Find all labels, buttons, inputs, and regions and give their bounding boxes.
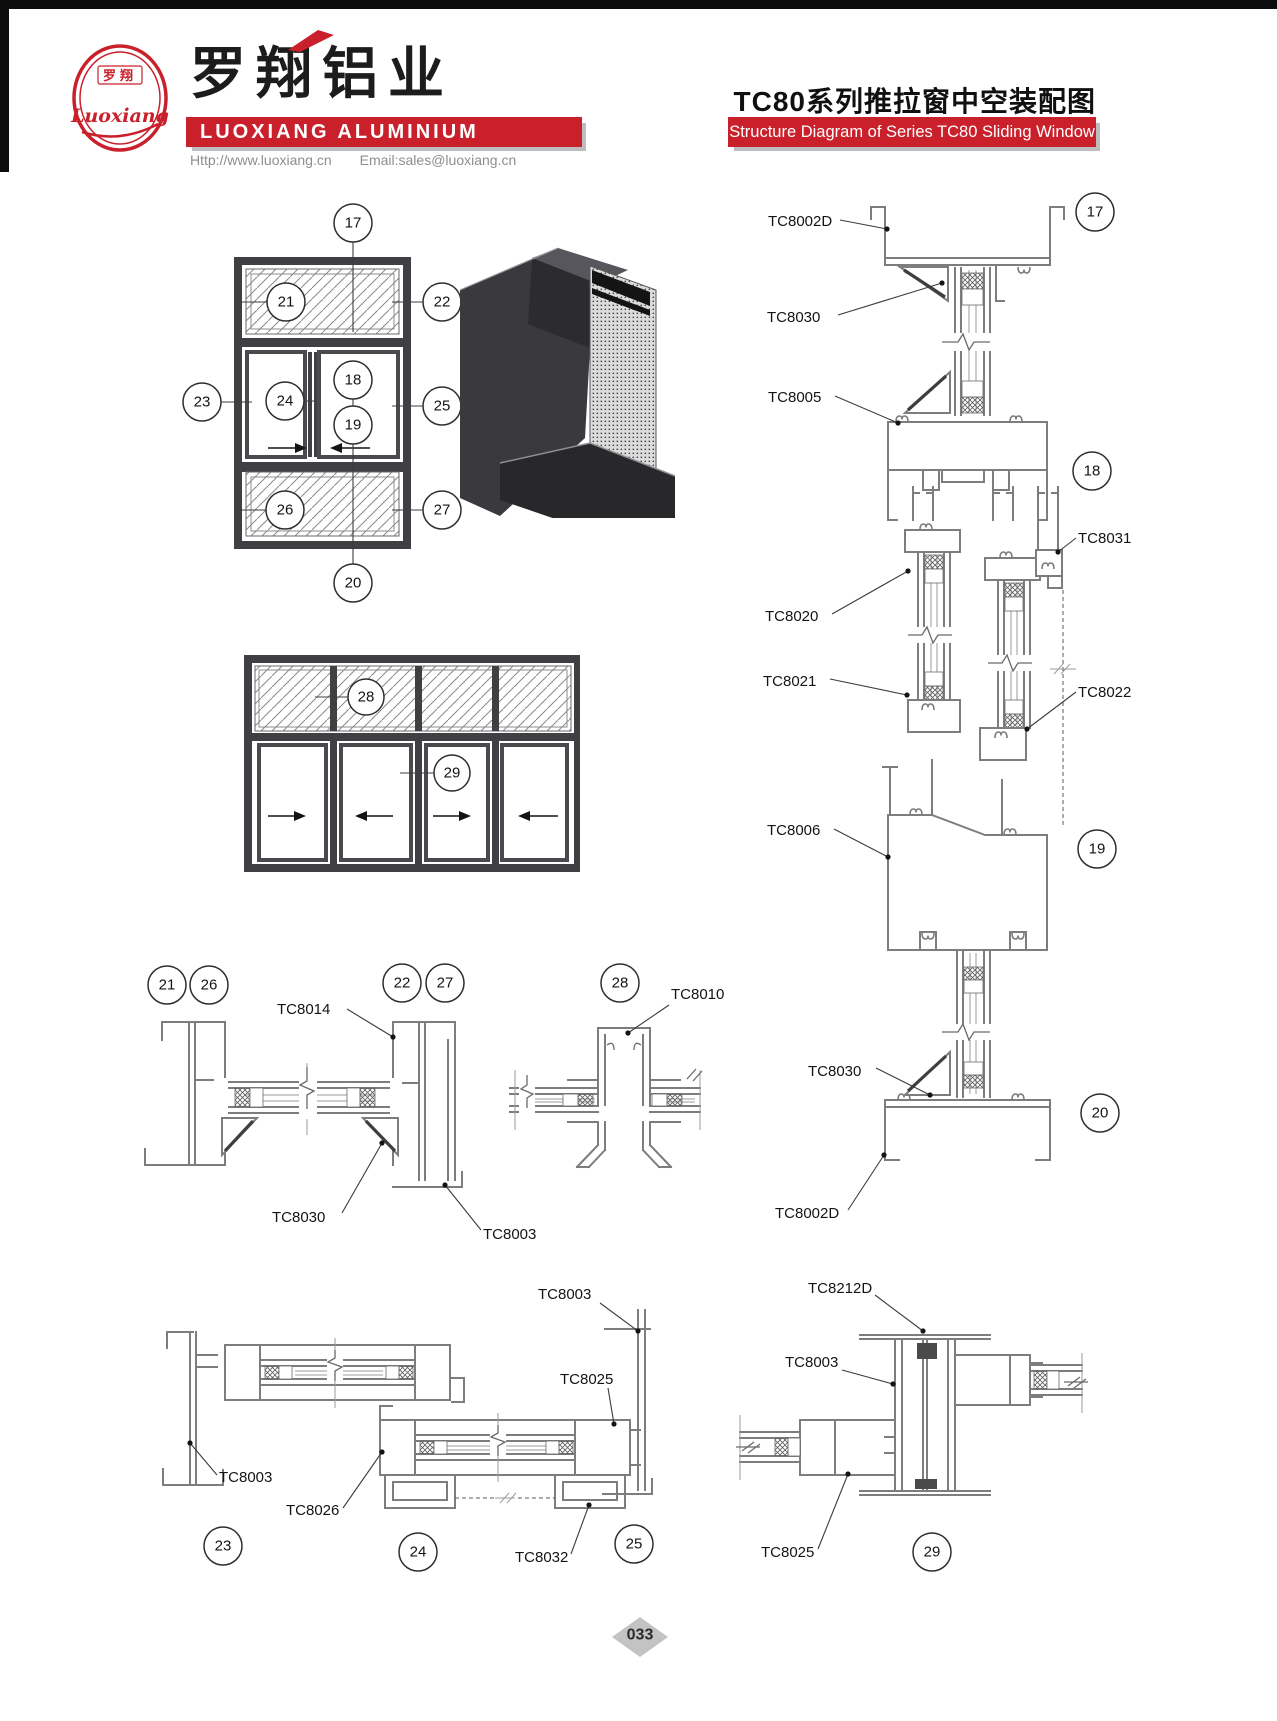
part-label-tc8031: TC8031 bbox=[1078, 530, 1131, 547]
svg-text:17: 17 bbox=[345, 215, 362, 232]
part-label-tc8014: TC8014 bbox=[277, 1001, 330, 1018]
callout-22: 22 bbox=[383, 964, 421, 1002]
svg-text:21: 21 bbox=[159, 977, 176, 994]
svg-text:20: 20 bbox=[345, 575, 362, 592]
left-sash-profile bbox=[736, 1415, 895, 1480]
vertical-section-diagram: TC8002D TC8030 TC8005 TC8020 TC8021 TC80… bbox=[680, 175, 1180, 1235]
callout-21: 21 bbox=[267, 283, 305, 321]
part-label-tc8010: TC8010 bbox=[671, 986, 724, 1003]
svg-text:24: 24 bbox=[277, 393, 294, 410]
part-label-tc8002d-top: TC8002D bbox=[768, 213, 832, 230]
callout-21: 21 bbox=[148, 966, 186, 1004]
callout-18: 18 bbox=[334, 361, 372, 399]
mullion-detail-diagram: TC8010 28 bbox=[455, 945, 755, 1195]
callout-20: 20 bbox=[334, 564, 372, 602]
part-label-tc8003-top: TC8003 bbox=[538, 1286, 591, 1303]
svg-text:26: 26 bbox=[277, 502, 294, 519]
bottom-frame-profile bbox=[885, 1094, 1050, 1160]
scan-edge-top bbox=[0, 0, 1277, 9]
part-label-tc8003: TC8003 bbox=[483, 1226, 536, 1243]
svg-text:27: 27 bbox=[437, 975, 454, 992]
callout-28: 28 bbox=[601, 964, 639, 1002]
svg-text:28: 28 bbox=[612, 975, 629, 992]
callout-28: 28 bbox=[348, 679, 384, 715]
brand-accent-icon bbox=[288, 30, 334, 52]
callout-17: 17 bbox=[1076, 193, 1114, 231]
callout-29: 29 bbox=[434, 755, 470, 791]
page-title-cn: TC80系列推拉窗中空装配图 bbox=[700, 80, 1096, 120]
logo-script-text: Luoxiang bbox=[70, 105, 169, 127]
svg-text:29: 29 bbox=[444, 765, 461, 782]
elevation-wide-diagram: 28 29 bbox=[228, 643, 580, 873]
brand-bar-text: LUOXIANG ALUMINIUM bbox=[186, 121, 479, 143]
part-label-tc8025: TC8025 bbox=[560, 1371, 613, 1388]
sash-rails-and-glass bbox=[905, 487, 1040, 760]
svg-text:25: 25 bbox=[626, 1536, 643, 1553]
contact-website: Http://www.luoxiang.cn bbox=[190, 152, 332, 168]
glazing-strip bbox=[229, 1063, 389, 1135]
part-label-tc8003: TC8003 bbox=[785, 1354, 838, 1371]
svg-text:19: 19 bbox=[1089, 841, 1106, 858]
mullion-leaders bbox=[625, 1005, 669, 1036]
meeting-stile-detail-diagram: TC8212D TC8003 TC8025 29 bbox=[690, 1255, 1110, 1585]
callout-18: 18 bbox=[1073, 452, 1111, 490]
svg-text:23: 23 bbox=[194, 394, 211, 411]
page-number-text: 033 bbox=[627, 1627, 654, 1644]
title-bar-en: Structure Diagram of Series TC80 Sliding… bbox=[728, 117, 1096, 147]
callout-23: 23 bbox=[183, 383, 221, 421]
callout-19: 19 bbox=[334, 406, 372, 444]
aluminium-profile-corner-image bbox=[460, 248, 675, 518]
svg-text:23: 23 bbox=[215, 1538, 232, 1555]
elevation-main-diagram: 17 21 22 23 24 18 19 25 26 27 20 bbox=[180, 200, 470, 612]
callout-19: 19 bbox=[1078, 830, 1116, 868]
part-label-tc8030-top: TC8030 bbox=[767, 309, 820, 326]
callout-29: 29 bbox=[913, 1533, 951, 1571]
brand-title-cn: 罗翔铝业 bbox=[190, 46, 454, 102]
scan-edge-left bbox=[0, 0, 9, 172]
brand-bar: LUOXIANG ALUMINIUM bbox=[186, 117, 582, 147]
callout-25: 25 bbox=[615, 1525, 653, 1563]
callout-24: 24 bbox=[399, 1533, 437, 1571]
part-label-tc8025: TC8025 bbox=[761, 1544, 814, 1561]
svg-text:28: 28 bbox=[358, 689, 375, 706]
part-label-tc8006: TC8006 bbox=[767, 822, 820, 839]
elevation-main-frame bbox=[238, 261, 407, 545]
svg-text:22: 22 bbox=[394, 975, 411, 992]
sill-profile bbox=[883, 760, 1047, 950]
callout-26: 26 bbox=[190, 966, 228, 1004]
svg-text:17: 17 bbox=[1087, 204, 1104, 221]
part-label-tc8022: TC8022 bbox=[1078, 684, 1131, 701]
callout-23: 23 bbox=[204, 1527, 242, 1565]
svg-text:21: 21 bbox=[278, 294, 295, 311]
logo-cn-text: 罗翔 bbox=[103, 68, 137, 83]
glazing-unit-bottom bbox=[905, 950, 996, 1097]
company-logo-icon: 罗翔 Luoxiang bbox=[70, 42, 170, 154]
title-bar-text: Structure Diagram of Series TC80 Sliding… bbox=[728, 117, 1096, 147]
interlock-detail-diagram: TC8003 TC8025 TC8003 TC8026 TC8032 23 24… bbox=[130, 1270, 690, 1580]
part-label-tc8030-bottom: TC8030 bbox=[808, 1063, 861, 1080]
svg-text:19: 19 bbox=[345, 417, 362, 434]
svg-text:20: 20 bbox=[1092, 1105, 1109, 1122]
contact-line: Http://www.luoxiang.cnEmail:sales@luoxia… bbox=[190, 152, 544, 168]
svg-text:24: 24 bbox=[410, 1544, 427, 1561]
lower-sash-profile bbox=[380, 1413, 630, 1482]
part-label-tc8032: TC8032 bbox=[515, 1549, 568, 1566]
right-sash-profile bbox=[955, 1353, 1088, 1413]
left-frame-profile bbox=[163, 1332, 223, 1485]
callout-17: 17 bbox=[334, 204, 372, 242]
svg-text:18: 18 bbox=[1084, 463, 1101, 480]
contact-email: Email:sales@luoxiang.cn bbox=[360, 152, 517, 168]
part-label-tc8020: TC8020 bbox=[765, 608, 818, 625]
part-label-tc8026: TC8026 bbox=[286, 1502, 339, 1519]
elevation-wide-frame bbox=[248, 659, 578, 868]
part-label-tc8005: TC8005 bbox=[768, 389, 821, 406]
page-number-diamond: 033 bbox=[575, 1608, 705, 1668]
callout-26: 26 bbox=[266, 491, 304, 529]
part-label-tc8021: TC8021 bbox=[763, 673, 816, 690]
glazing-wedges bbox=[222, 1118, 398, 1155]
part-label-tc8002d-bottom: TC8002D bbox=[775, 1205, 839, 1222]
profile-3d-render bbox=[440, 228, 690, 518]
upper-sash-profile bbox=[225, 1338, 450, 1408]
svg-text:18: 18 bbox=[345, 372, 362, 389]
left-jamb-profile bbox=[145, 1022, 225, 1165]
part-label-tc8212d: TC8212D bbox=[808, 1280, 872, 1297]
callout-20: 20 bbox=[1081, 1094, 1119, 1132]
catalog-page: 罗翔 Luoxiang 罗翔铝业 LUOXIANG ALUMINIUM Http… bbox=[0, 0, 1277, 1721]
svg-text:26: 26 bbox=[201, 977, 218, 994]
right-jamb-profile bbox=[393, 1022, 462, 1187]
svg-text:29: 29 bbox=[924, 1544, 941, 1561]
end-channel-profile bbox=[1036, 487, 1076, 825]
part-label-tc8030: TC8030 bbox=[272, 1209, 325, 1226]
part-label-tc8003-left: TC8003 bbox=[219, 1469, 272, 1486]
callout-24: 24 bbox=[266, 382, 304, 420]
